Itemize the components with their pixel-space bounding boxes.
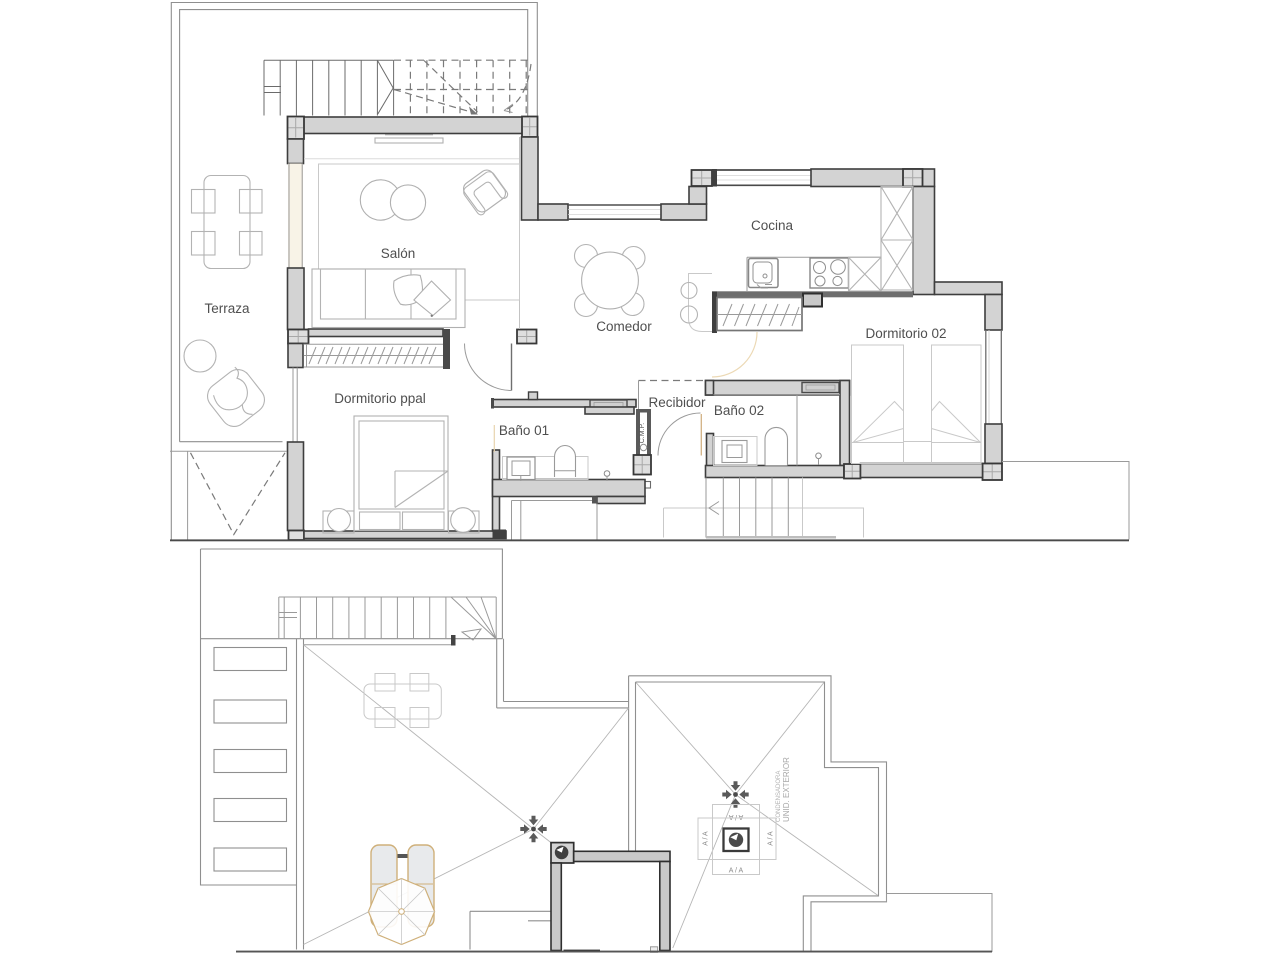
svg-text:Baño 01: Baño 01 — [499, 423, 549, 438]
svg-text:A / A: A / A — [703, 831, 710, 846]
svg-text:A / A: A / A — [729, 868, 744, 875]
svg-text:Dormitorio 02: Dormitorio 02 — [865, 326, 946, 341]
svg-text:UNID. EXTERIOR: UNID. EXTERIOR — [782, 757, 791, 822]
svg-text:A / A: A / A — [768, 831, 775, 846]
svg-text:Comedor: Comedor — [596, 319, 652, 334]
svg-text:C.M.P.: C.M.P. — [639, 423, 646, 444]
svg-text:A / A: A / A — [728, 813, 743, 820]
svg-text:Cocina: Cocina — [751, 218, 794, 233]
svg-text:Recibidor: Recibidor — [648, 395, 706, 410]
svg-text:Baño 02: Baño 02 — [714, 403, 764, 418]
svg-text:Salón: Salón — [381, 246, 416, 261]
svg-text:CONDENSADORA: CONDENSADORA — [776, 771, 782, 822]
svg-text:Dormitorio ppal: Dormitorio ppal — [334, 391, 426, 406]
svg-text:Terraza: Terraza — [204, 301, 250, 316]
